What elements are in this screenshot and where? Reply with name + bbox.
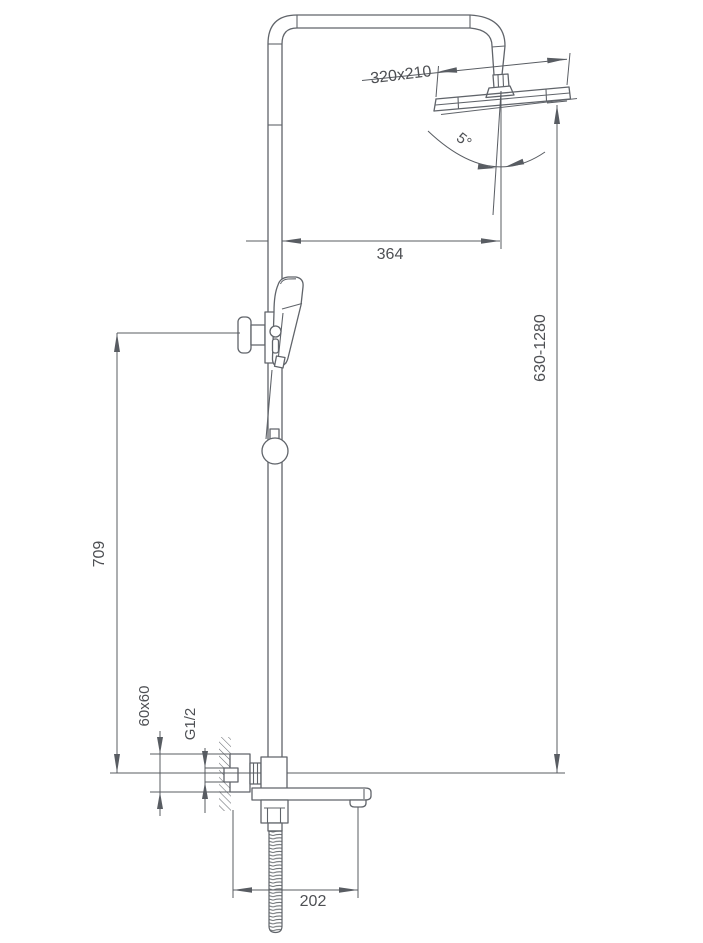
slider-knob <box>238 317 251 353</box>
dim-thread-size-label: G1/2 <box>182 708 199 741</box>
dimension-riser-height: 630-1280 <box>532 101 567 773</box>
technical-drawing-page: 709 630-1280 364 320x210 5° <box>0 0 703 943</box>
slider-lock-button <box>270 326 281 337</box>
dimension-spout-length: 202 <box>233 807 358 910</box>
slider-stem <box>251 325 265 345</box>
valve-body <box>261 757 287 790</box>
mixer-valve-assembly <box>219 737 371 933</box>
dimension-thread-size: G1/2 <box>182 708 224 813</box>
spout-outlet <box>350 800 366 807</box>
dimension-arm-reach: 364 <box>246 238 500 263</box>
dim-head-size-label: 320x210 <box>369 63 432 87</box>
dim-tilt-angle-label: 5° <box>453 129 475 151</box>
overhead-shower-head <box>434 74 577 115</box>
dim-arm-reach-label: 364 <box>377 246 404 263</box>
dimension-tilt-angle: 5° <box>428 91 545 249</box>
dim-riser-height-label: 630-1280 <box>532 314 549 382</box>
flexible-hose <box>269 831 282 933</box>
hand-shower-nozzle <box>275 356 286 368</box>
dim-slider-height-label: 709 <box>91 541 108 568</box>
spout <box>252 788 371 800</box>
shower-column-drawing: 709 630-1280 364 320x210 5° <box>0 0 703 943</box>
dim-spout-length-label: 202 <box>300 893 327 910</box>
wall-connection <box>224 768 238 782</box>
slider-and-hand-shower <box>238 277 303 439</box>
dimension-head-size: 320x210 <box>362 53 570 97</box>
riser-and-shower-arm <box>268 15 505 758</box>
dim-escutcheon-size-label: 60x60 <box>136 686 153 727</box>
dimension-slider-height: 709 <box>91 333 240 773</box>
dimension-escutcheon-size: 60x60 <box>136 686 230 816</box>
hose-nipple <box>268 823 282 831</box>
diverter-housing <box>261 800 288 823</box>
